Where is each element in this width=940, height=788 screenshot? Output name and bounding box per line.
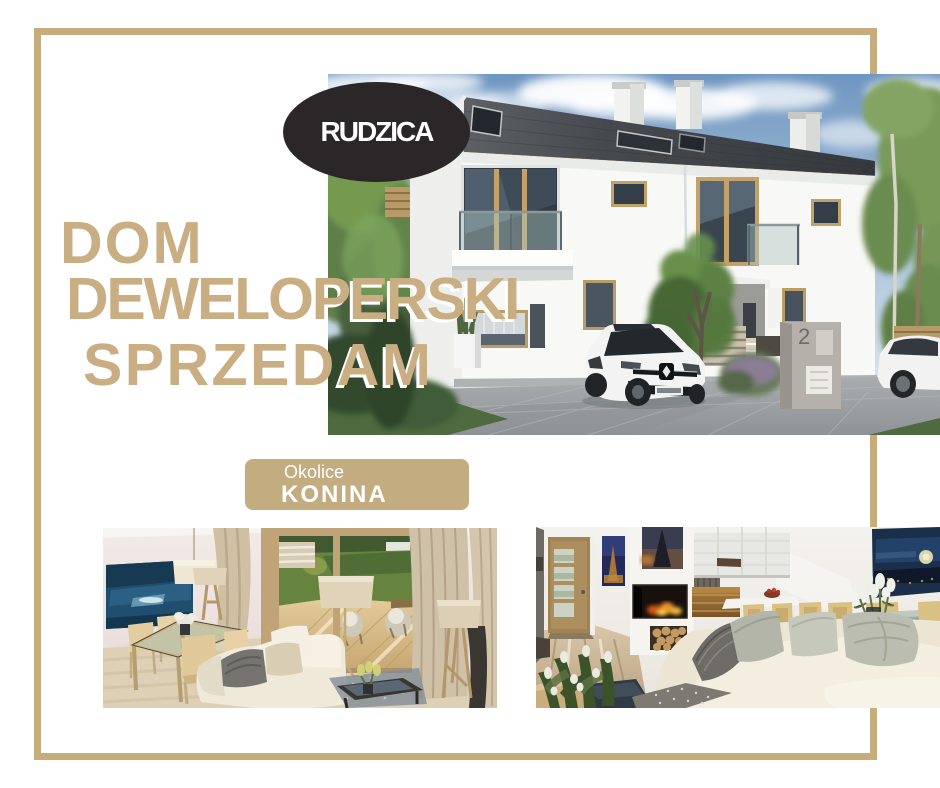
svg-text:2: 2 [798, 324, 810, 349]
